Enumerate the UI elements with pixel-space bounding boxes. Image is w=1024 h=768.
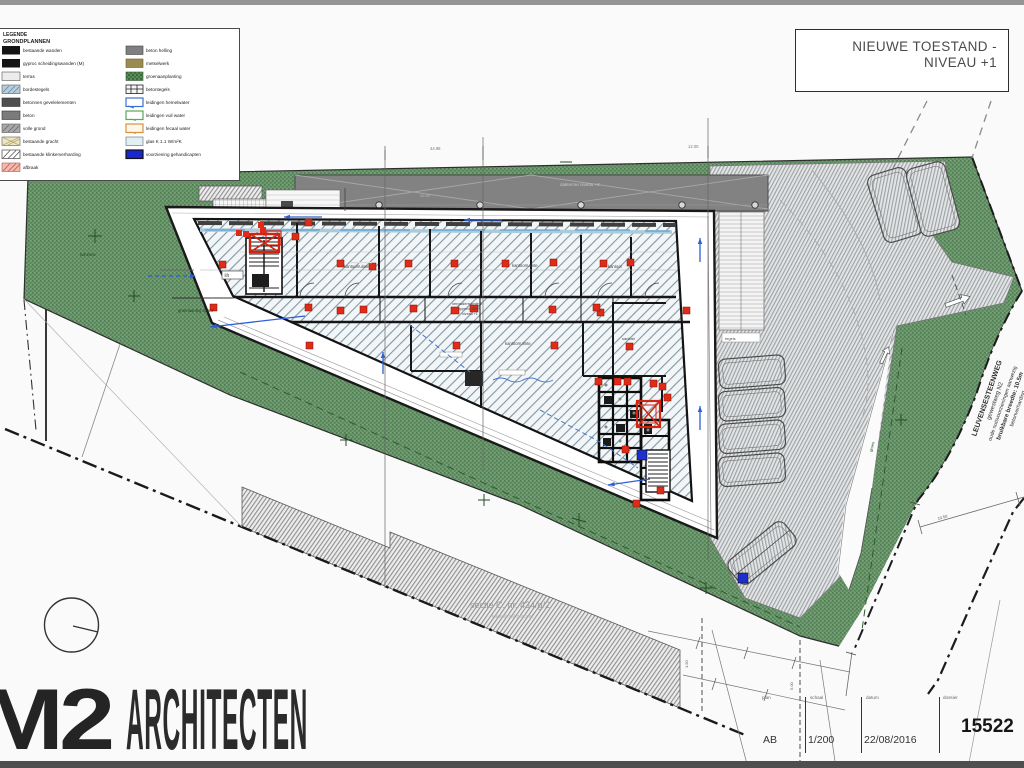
svg-text:sanitair: sanitair xyxy=(622,336,636,341)
svg-text:sectie C, nr. 434/g/2: sectie C, nr. 434/g/2 xyxy=(470,600,550,610)
svg-text:lift: lift xyxy=(225,273,230,278)
svg-text:kantoorruimte: kantoorruimte xyxy=(344,264,370,269)
svg-text:dakterras niveau +2: dakterras niveau +2 xyxy=(560,182,600,187)
svg-text:5.00: 5.00 xyxy=(789,681,794,690)
svg-text:tegels: tegels xyxy=(725,336,736,341)
svg-text:vergaderruimte 2: vergaderruimte 2 xyxy=(452,301,483,306)
svg-text:oppervl. 48m²: oppervl. 48m² xyxy=(458,307,481,311)
svg-text:tuinzone: tuinzone xyxy=(80,252,97,257)
svg-text:44.98: 44.98 xyxy=(430,146,441,151)
svg-text:1.50: 1.50 xyxy=(684,659,689,668)
svg-text:kantoorruimte: kantoorruimte xyxy=(505,341,531,346)
svg-text:45.60: 45.60 xyxy=(420,193,431,198)
svg-text:groenaanleg 225m²: groenaanleg 225m² xyxy=(178,308,215,313)
svg-text:kantoor: kantoor xyxy=(608,264,623,269)
svg-text:niveau +1: niveau +1 xyxy=(462,312,478,316)
svg-text:kantoorruimte: kantoorruimte xyxy=(512,263,538,268)
svg-text:12.00: 12.00 xyxy=(688,144,699,149)
svg-text:kadastraal perceel: kadastraal perceel xyxy=(492,614,533,620)
